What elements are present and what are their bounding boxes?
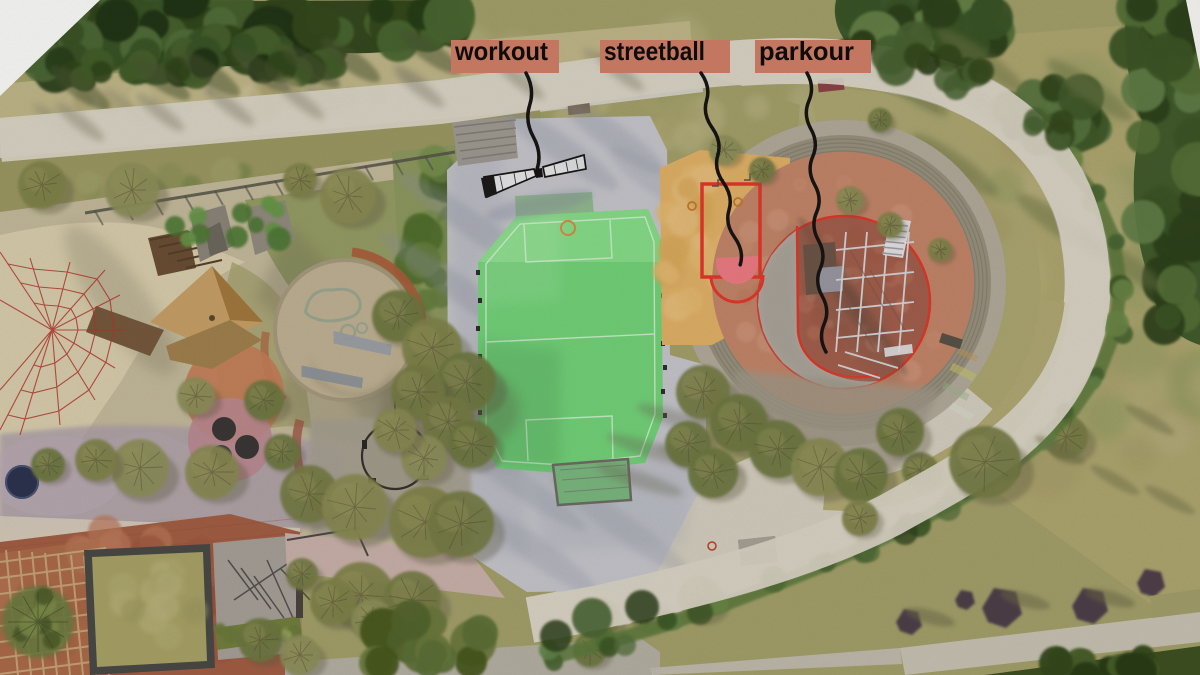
svg-text:streetball: streetball (604, 36, 705, 66)
svg-text:parkour: parkour (759, 36, 854, 66)
svg-text:workout: workout (454, 36, 548, 66)
